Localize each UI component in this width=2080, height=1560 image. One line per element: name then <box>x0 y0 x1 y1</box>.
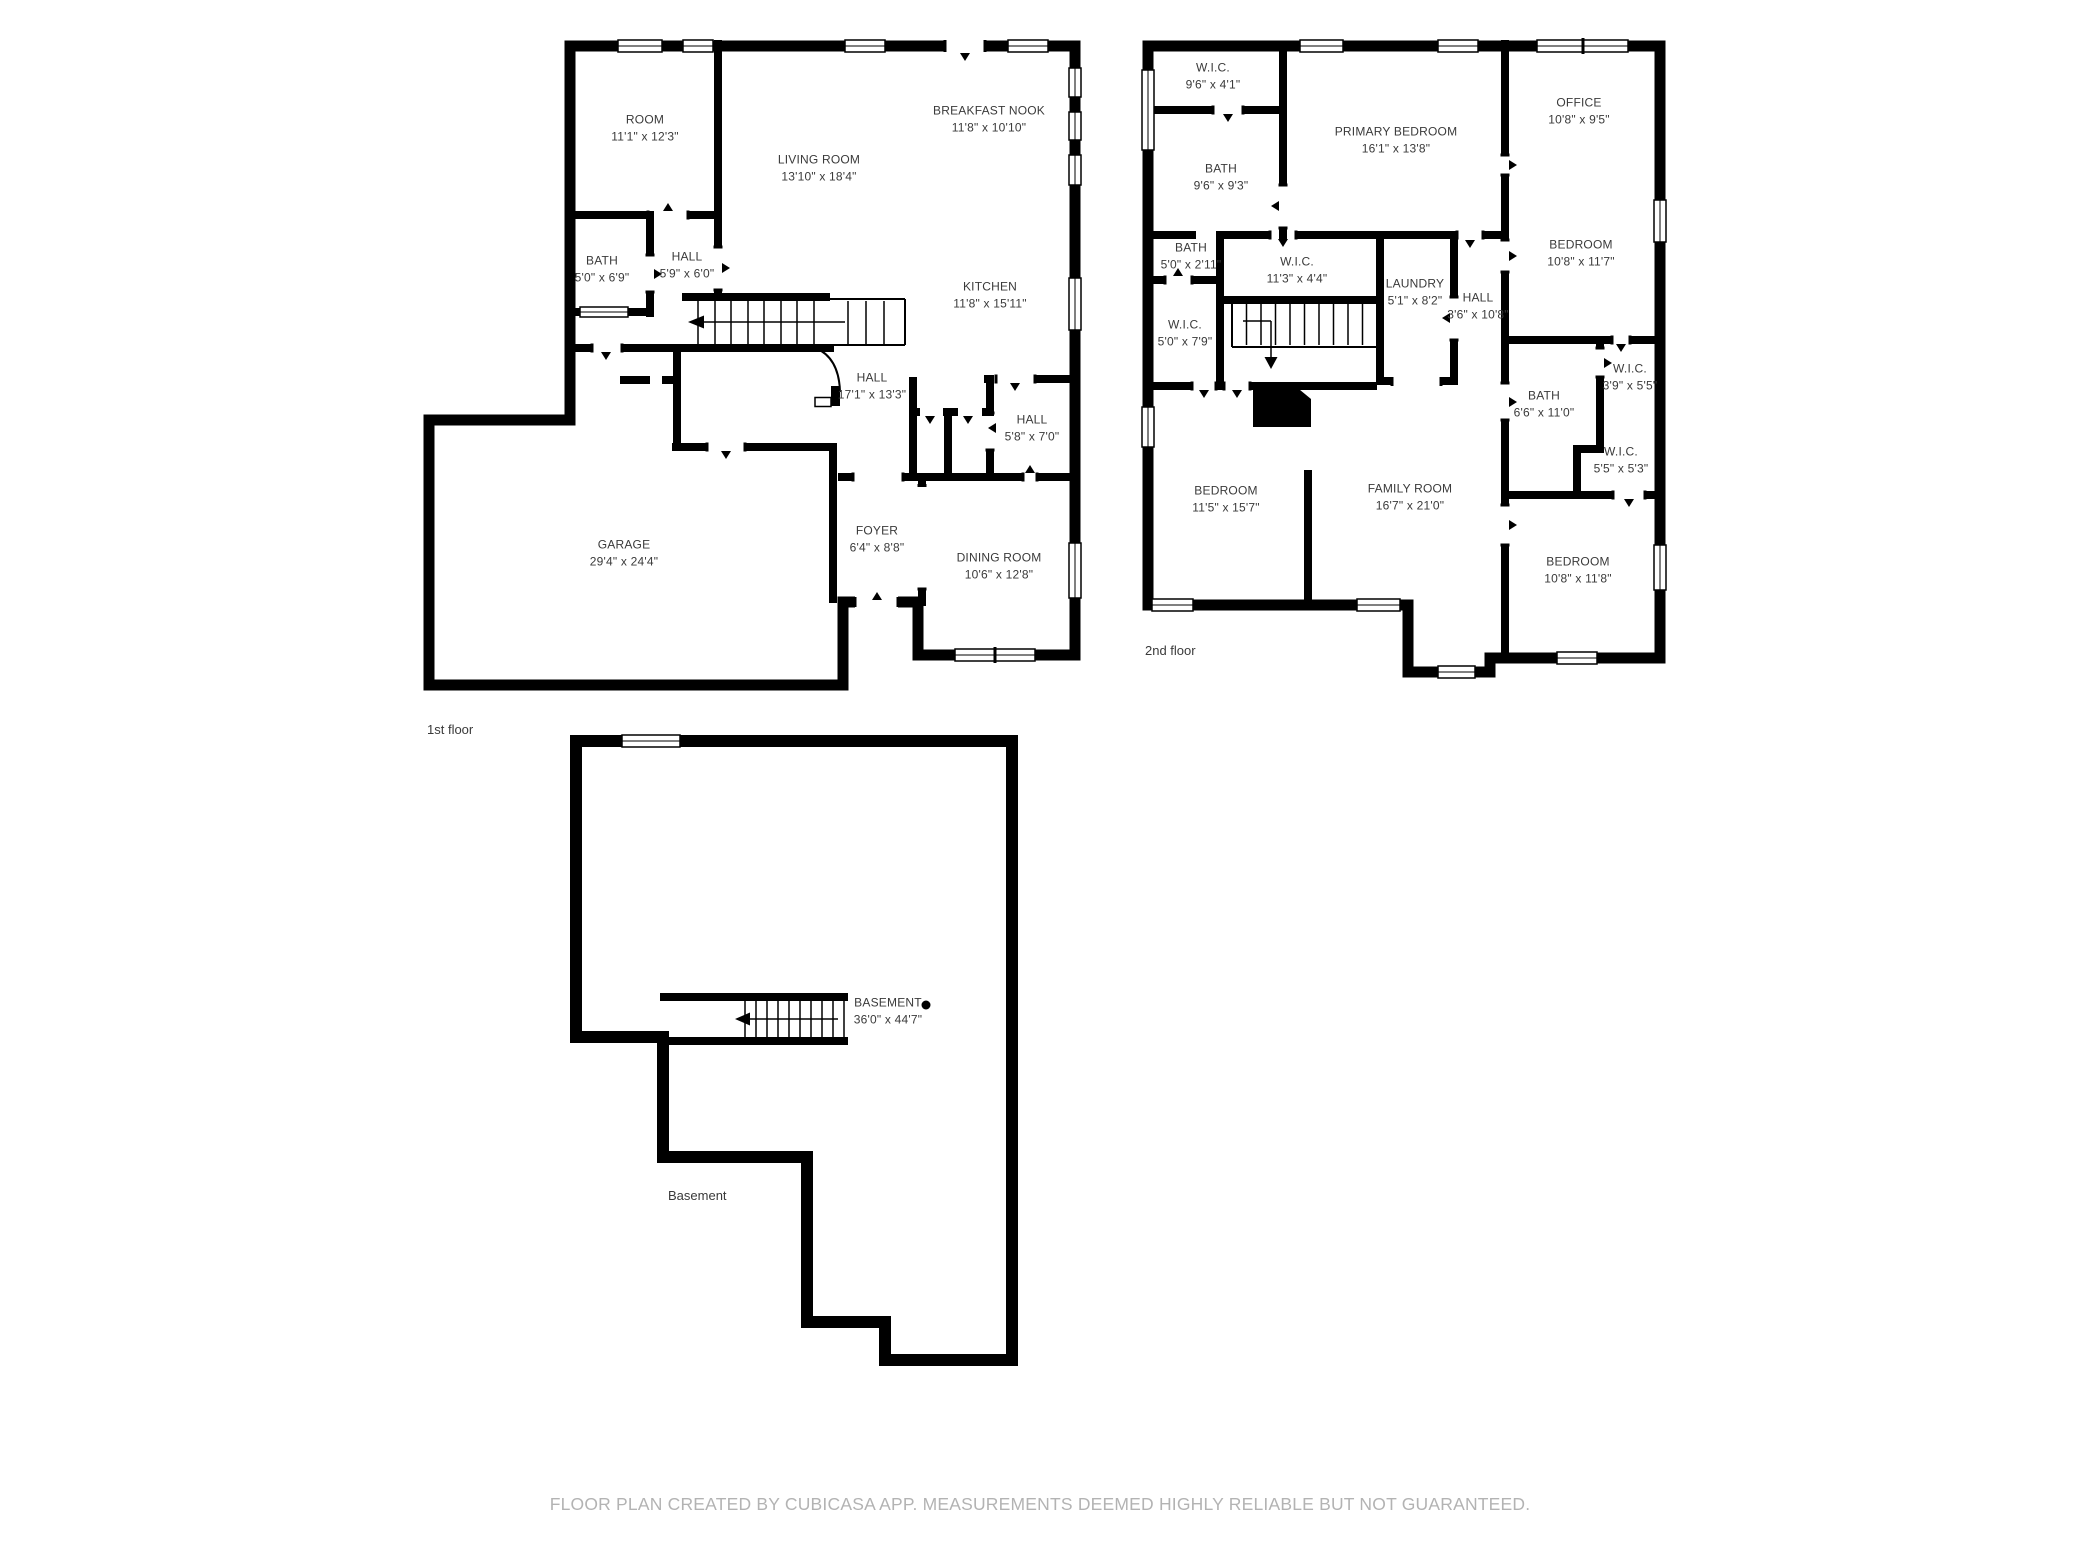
room-label: KITCHEN11'8" x 15'11" <box>953 279 1027 312</box>
room-label: ROOM11'1" x 12'3" <box>611 112 679 145</box>
room-label: BATH6'6" x 11'0" <box>1514 388 1575 421</box>
room-label: HALL17'1" x 13'3" <box>838 370 906 403</box>
room-label: HALL3'6" x 10'8" <box>1447 290 1509 323</box>
room-label: W.I.C.3'9" x 5'5" <box>1603 361 1658 394</box>
room-label: LIVING ROOM13'10" x 18'4" <box>778 152 860 185</box>
first-floor-plan <box>424 40 1082 691</box>
floor-label-1: 1st floor <box>427 722 473 737</box>
chimney-mass <box>1253 385 1311 427</box>
room-label: BEDROOM10'8" x 11'7" <box>1547 237 1615 270</box>
disclaimer-text: FLOOR PLAN CREATED BY CUBICASA APP. MEAS… <box>0 1494 2080 1515</box>
floor-label-3: Basement <box>668 1188 727 1203</box>
room-label: W.I.C.5'5" x 5'3" <box>1594 444 1649 477</box>
room-label: GARAGE29'4" x 24'4" <box>590 537 658 570</box>
room-label: BATH5'0" x 6'9" <box>575 253 630 286</box>
floor-plan-drawing <box>0 0 2080 1560</box>
room-label: FOYER6'4" x 8'8" <box>850 523 905 556</box>
room-label: W.I.C.9'6" x 4'1" <box>1186 60 1241 93</box>
room-label: DINING ROOM10'6" x 12'8" <box>957 550 1042 583</box>
room-label: OFFICE10'8" x 9'5" <box>1548 95 1610 128</box>
room-label: W.I.C.5'0" x 7'9" <box>1158 317 1213 350</box>
room-label: LAUNDRY5'1" x 8'2" <box>1386 276 1445 309</box>
room-label: BEDROOM11'5" x 15'7" <box>1192 483 1260 516</box>
floor-plan-page: 1st floorROOM11'1" x 12'3"LIVING ROOM13'… <box>0 0 2080 1560</box>
room-label: PRIMARY BEDROOM16'1" x 13'8" <box>1335 124 1458 157</box>
room-label: BREAKFAST NOOK11'8" x 10'10" <box>933 103 1045 136</box>
fixture-dot <box>922 1001 931 1010</box>
room-label: BATH5'0" x 2'11" <box>1161 240 1222 273</box>
room-label: BATH9'6" x 9'3" <box>1194 161 1249 194</box>
room-label: FAMILY ROOM16'7" x 21'0" <box>1368 481 1452 514</box>
basement-plan <box>570 735 1018 1366</box>
room-label: W.I.C.11'3" x 4'4" <box>1267 254 1328 287</box>
room-label: BEDROOM10'8" x 11'8" <box>1544 554 1612 587</box>
room-label: HALL5'9" x 6'0" <box>660 249 715 282</box>
room-label: HALL5'8" x 7'0" <box>1005 412 1060 445</box>
room-label: BASEMENT36'0" x 44'7" <box>854 995 922 1028</box>
floor-label-2: 2nd floor <box>1145 643 1196 658</box>
